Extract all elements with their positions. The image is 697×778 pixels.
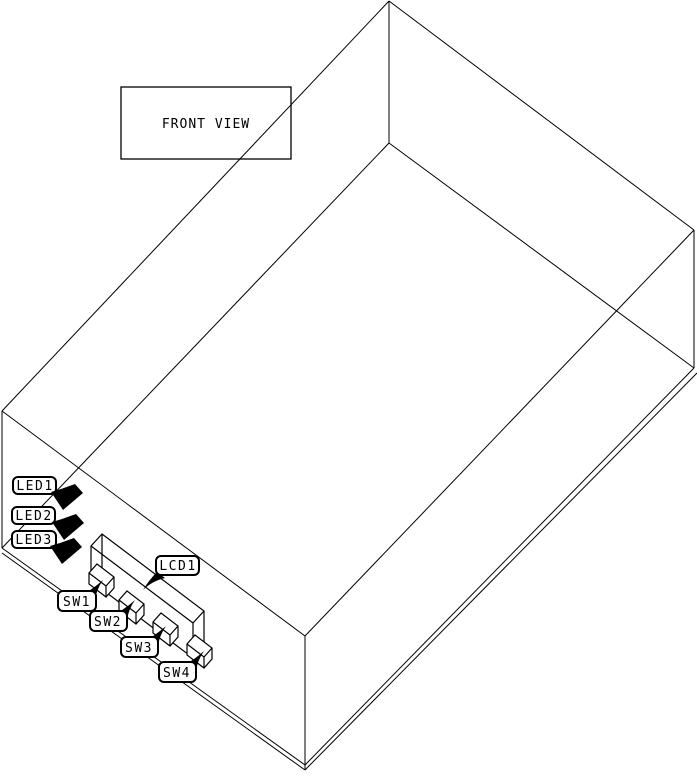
callout-led2-label: LED2	[15, 509, 52, 524]
edge-top-front-right	[305, 230, 694, 636]
callout-led3: LED3	[12, 531, 56, 548]
edge-bottom-back-right-hidden	[389, 143, 694, 368]
callout-sw4-label: SW4	[163, 666, 191, 681]
callout-led1-label: LED1	[16, 479, 53, 494]
callout-led1: LED1	[13, 477, 56, 494]
isometric-enclosure-diagram: FRONT VIEW LED1 LED2	[0, 0, 697, 778]
edge-top-right	[389, 1, 694, 230]
edge-top-left	[2, 1, 389, 411]
callout-sw3-label: SW3	[125, 641, 153, 656]
callout-sw1-label: SW1	[63, 595, 91, 610]
callout-led2: LED2	[12, 507, 55, 524]
diagram-page: FRONT VIEW LED1 LED2	[0, 0, 697, 778]
callout-led3-label: LED3	[15, 533, 52, 548]
callout-sw2-label: SW2	[94, 615, 122, 630]
led-components	[50, 484, 84, 564]
base-seam-right-lower	[305, 373, 697, 770]
callout-lcd1-label: LCD1	[159, 559, 196, 574]
edge-bottom-back-left-hidden	[2, 143, 389, 548]
front-view-title: FRONT VIEW	[121, 87, 291, 159]
base-seam-right-upper	[305, 368, 694, 765]
front-view-text: FRONT VIEW	[162, 117, 250, 132]
enclosure-wireframe	[2, 1, 697, 770]
